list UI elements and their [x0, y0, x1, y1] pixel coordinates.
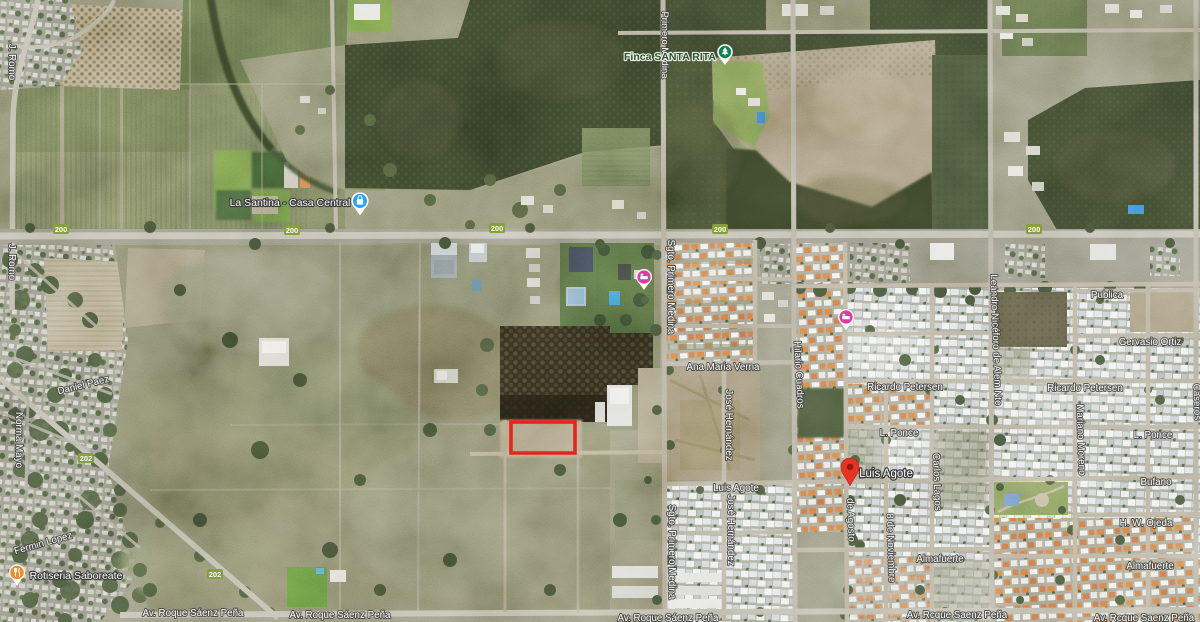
- svg-text:Ricardo Petersen: Ricardo Petersen: [867, 382, 943, 393]
- svg-text:Rotiseria Saboreate: Rotiseria Saboreate: [30, 570, 123, 582]
- svg-text:Carlos Lagos: Carlos Lagos: [930, 453, 943, 511]
- svg-text:L. Ponce: L. Ponce: [880, 428, 919, 439]
- svg-text:Ricardo Petersen: Ricardo Petersen: [1047, 383, 1123, 394]
- svg-text:200: 200: [491, 224, 504, 233]
- svg-text:200: 200: [55, 225, 68, 234]
- svg-text:Almafuerte: Almafuerte: [1126, 561, 1174, 572]
- svg-text:Av. Roque Sáenz Peña: Av. Roque Sáenz Peña: [143, 608, 244, 619]
- svg-text:Luis Agote: Luis Agote: [859, 468, 913, 480]
- svg-text:José Hernández: José Hernández: [725, 494, 736, 565]
- svg-text:Luis Agote: Luis Agote: [713, 483, 759, 494]
- svg-text:de Agosto: de Agosto: [844, 498, 857, 542]
- svg-text:Primero Medina: Primero Medina: [659, 11, 670, 79]
- svg-text:200: 200: [1028, 225, 1041, 234]
- svg-text:Av. Rcque Saenz Peña: Av. Rcque Saenz Peña: [1094, 613, 1195, 622]
- svg-text:Norma Mayo: Norma Mayo: [13, 412, 24, 469]
- svg-text:Almafuerte: Almafuerte: [916, 554, 964, 565]
- svg-text:Gervasio Ortiz: Gervasio Ortiz: [1119, 337, 1182, 348]
- svg-text:200: 200: [286, 226, 299, 235]
- svg-text:Av. Roque Sáenz Peña: Av. Roque Sáenz Peña: [290, 610, 391, 621]
- svg-text:H. W. Ojeda: H. W. Ojeda: [1120, 518, 1173, 529]
- svg-text:J. Romo: J. Romo: [6, 44, 17, 81]
- svg-text:Ana Maria Verna: Ana Maria Verna: [687, 362, 761, 373]
- svg-text:L. Ponce: L. Ponce: [1134, 430, 1173, 441]
- svg-text:La Santina - Casa Central: La Santina - Casa Central: [230, 197, 351, 209]
- svg-text:Sgto. Primero Medina: Sgto. Primero Medina: [666, 505, 677, 600]
- svg-text:Finca SANTA RITA: Finca SANTA RITA: [624, 51, 716, 63]
- svg-text:200: 200: [714, 225, 727, 234]
- svg-text:Publica: Publica: [1091, 290, 1124, 301]
- svg-text:Av. Rcque Saenz Peña: Av. Rcque Saenz Peña: [907, 610, 1008, 621]
- svg-text:J. Romo: J. Romo: [6, 244, 17, 281]
- svg-text:Sgto. Primero Medina: Sgto. Primero Medina: [665, 240, 676, 335]
- svg-text:Caseros: Caseros: [1190, 383, 1200, 420]
- svg-text:Bufano: Bufano: [1140, 477, 1172, 488]
- svg-text:José Hernández: José Hernández: [723, 389, 734, 460]
- svg-text:202: 202: [80, 454, 93, 463]
- svg-text:Av. Roque Sáenz Peña: Av. Roque Sáenz Peña: [618, 613, 719, 622]
- svg-text:202: 202: [209, 570, 222, 579]
